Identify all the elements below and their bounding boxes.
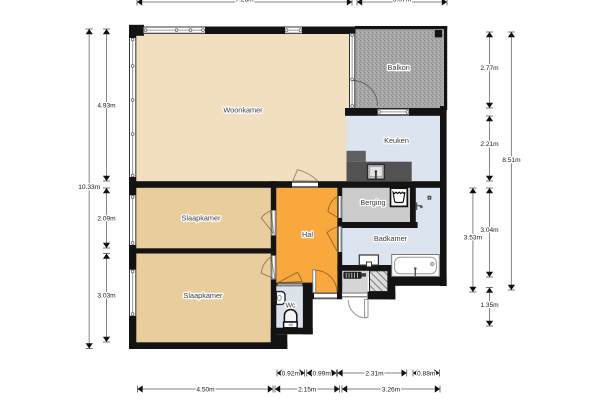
svg-text:3.04m: 3.04m <box>480 227 499 234</box>
svg-text:3.26m: 3.26m <box>382 387 401 394</box>
svg-text:10.33m: 10.33m <box>78 184 101 191</box>
svg-text:2.21m: 2.21m <box>480 141 499 148</box>
svg-text:Keuken: Keuken <box>384 136 409 145</box>
svg-text:Woonkamer: Woonkamer <box>223 106 263 115</box>
svg-text:2.09m: 2.09m <box>97 216 116 223</box>
svg-text:1.35m: 1.35m <box>480 302 499 309</box>
svg-text:Badkamer: Badkamer <box>374 234 408 243</box>
svg-text:Wc: Wc <box>285 303 296 310</box>
svg-text:Balkon: Balkon <box>388 63 410 72</box>
svg-text:Berging: Berging <box>360 198 385 207</box>
svg-text:0.92m: 0.92m <box>282 371 301 378</box>
svg-text:Slaapkamer: Slaapkamer <box>184 291 224 300</box>
svg-text:3.53m: 3.53m <box>464 235 483 242</box>
svg-text:4.93m: 4.93m <box>97 103 116 110</box>
svg-text:2.15m: 2.15m <box>298 387 317 394</box>
svg-text:7.26m: 7.26m <box>235 0 254 4</box>
svg-text:4.50m: 4.50m <box>196 387 215 394</box>
svg-text:3.07m: 3.07m <box>393 0 412 4</box>
svg-text:2.77m: 2.77m <box>480 65 499 72</box>
svg-text:0.88m: 0.88m <box>417 371 436 378</box>
svg-text:0.99m: 0.99m <box>312 371 331 378</box>
svg-text:Slaapkamer: Slaapkamer <box>182 213 222 222</box>
svg-text:Hal: Hal <box>302 230 313 239</box>
svg-text:2.31m: 2.31m <box>365 371 384 378</box>
svg-text:8.51m: 8.51m <box>502 157 521 164</box>
svg-text:3.03m: 3.03m <box>97 293 116 300</box>
